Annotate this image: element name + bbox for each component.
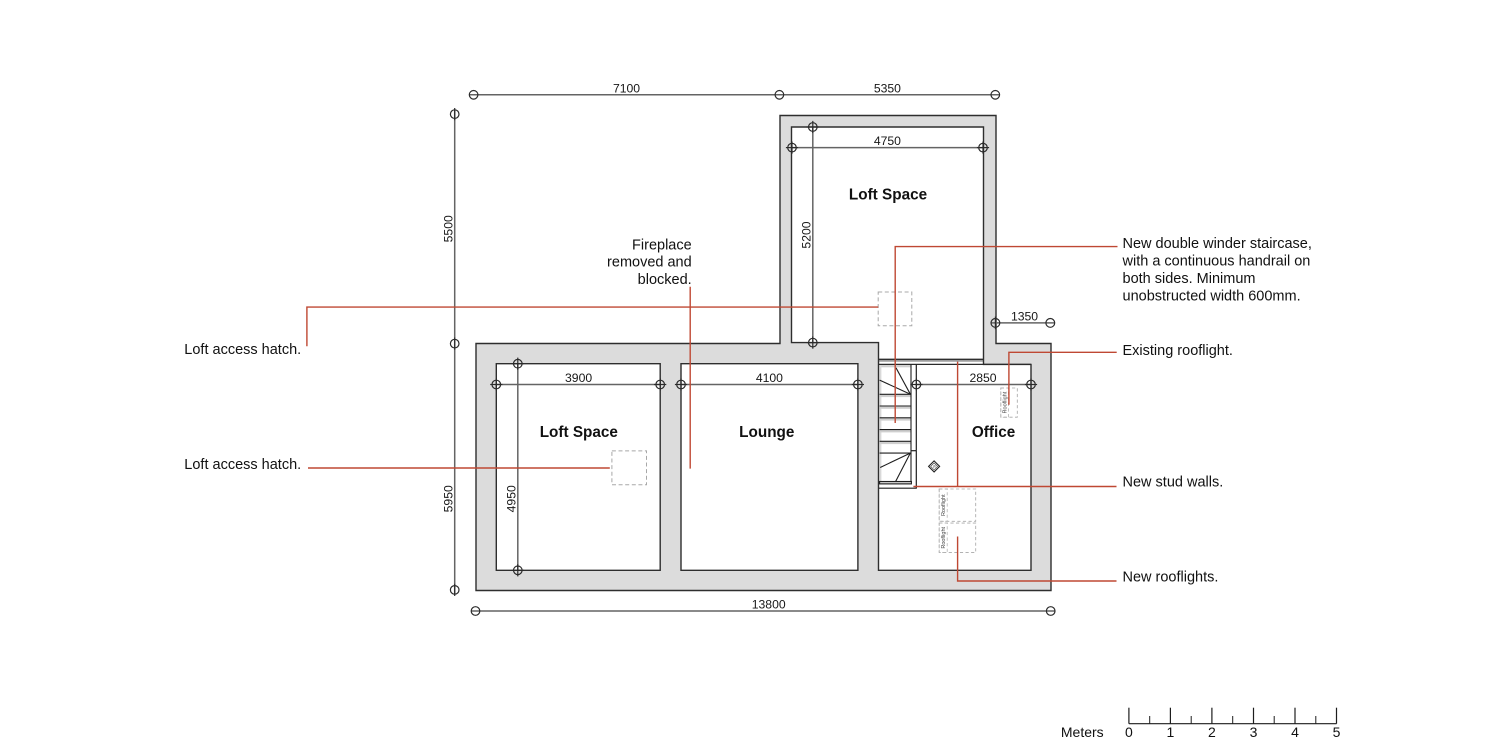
svg-text:2: 2 xyxy=(1208,724,1216,740)
svg-text:Rooflight: Rooflight xyxy=(941,494,947,516)
svg-text:5: 5 xyxy=(1333,724,1341,740)
svg-text:13800: 13800 xyxy=(752,598,786,612)
svg-text:5500: 5500 xyxy=(441,215,455,242)
svg-text:Meters: Meters xyxy=(1061,724,1104,740)
svg-text:with a continuous handrail on: with a continuous handrail on xyxy=(1122,253,1311,269)
svg-text:4: 4 xyxy=(1291,724,1299,740)
svg-text:both sides. Minimum: both sides. Minimum xyxy=(1123,271,1256,287)
svg-text:Fireplace: Fireplace xyxy=(632,237,692,253)
svg-text:unobstructed width 600mm.: unobstructed width 600mm. xyxy=(1123,289,1301,305)
svg-text:Existing rooflight.: Existing rooflight. xyxy=(1123,343,1233,359)
svg-text:Loft Space: Loft Space xyxy=(540,424,618,441)
svg-text:New rooflights.: New rooflights. xyxy=(1123,569,1219,585)
svg-text:3: 3 xyxy=(1250,724,1258,740)
svg-text:3900: 3900 xyxy=(565,371,592,385)
svg-text:7100: 7100 xyxy=(613,81,640,95)
svg-text:Rooflight: Rooflight xyxy=(1002,391,1008,413)
svg-text:Office: Office xyxy=(972,424,1015,441)
svg-text:New double winder staircase,: New double winder staircase, xyxy=(1123,236,1312,252)
svg-text:removed and: removed and xyxy=(607,255,692,271)
svg-text:S: S xyxy=(932,465,937,468)
svg-text:4100: 4100 xyxy=(756,371,783,385)
svg-text:1350: 1350 xyxy=(1011,309,1038,323)
svg-text:0: 0 xyxy=(1125,724,1133,740)
svg-text:5200: 5200 xyxy=(800,221,814,248)
svg-text:5950: 5950 xyxy=(441,485,455,512)
svg-text:1: 1 xyxy=(1167,724,1175,740)
svg-text:2850: 2850 xyxy=(969,371,996,385)
svg-text:Loft access hatch.: Loft access hatch. xyxy=(184,457,301,473)
svg-text:New stud walls.: New stud walls. xyxy=(1123,474,1224,490)
svg-text:Rooflight: Rooflight xyxy=(941,526,947,548)
svg-text:5350: 5350 xyxy=(874,81,901,95)
svg-text:4750: 4750 xyxy=(874,134,901,148)
svg-text:4950: 4950 xyxy=(505,485,519,512)
svg-text:blocked.: blocked. xyxy=(638,272,692,288)
svg-text:Lounge: Lounge xyxy=(739,424,794,441)
svg-text:Loft access hatch.: Loft access hatch. xyxy=(184,342,301,358)
svg-text:Loft Space: Loft Space xyxy=(849,187,927,204)
